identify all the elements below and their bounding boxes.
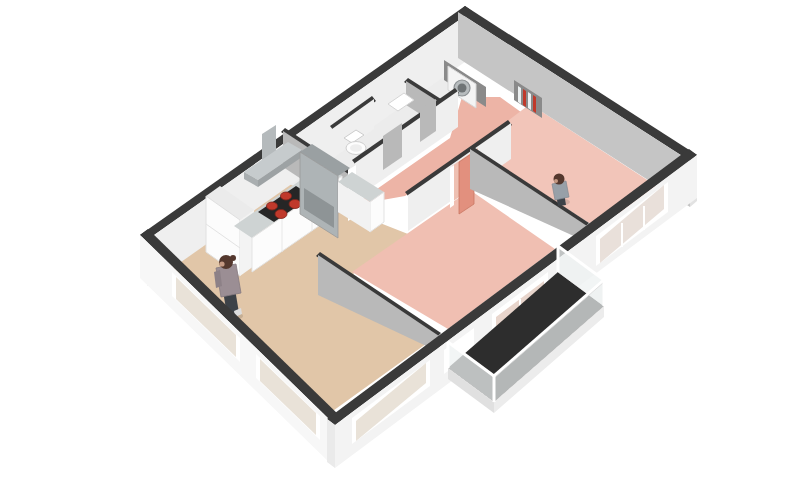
shelf-book bbox=[533, 95, 536, 113]
shelf-book bbox=[528, 92, 531, 110]
wall-corner-cap bbox=[327, 419, 335, 468]
burner bbox=[275, 210, 287, 219]
burner bbox=[281, 192, 292, 200]
floorplan-3d-render bbox=[0, 0, 800, 480]
floorplan-canvas bbox=[0, 0, 800, 480]
person-face bbox=[554, 179, 558, 183]
toilet-seat bbox=[350, 144, 362, 152]
burner bbox=[289, 200, 301, 209]
burner bbox=[267, 202, 278, 210]
person-face bbox=[219, 261, 224, 266]
master-door-jamb bbox=[450, 165, 454, 208]
shelf-book bbox=[523, 89, 526, 107]
washing-machine-drum bbox=[458, 84, 467, 93]
shelf-book bbox=[518, 86, 521, 104]
person-head-hair bbox=[554, 174, 565, 185]
person-hair-bun bbox=[230, 255, 236, 261]
